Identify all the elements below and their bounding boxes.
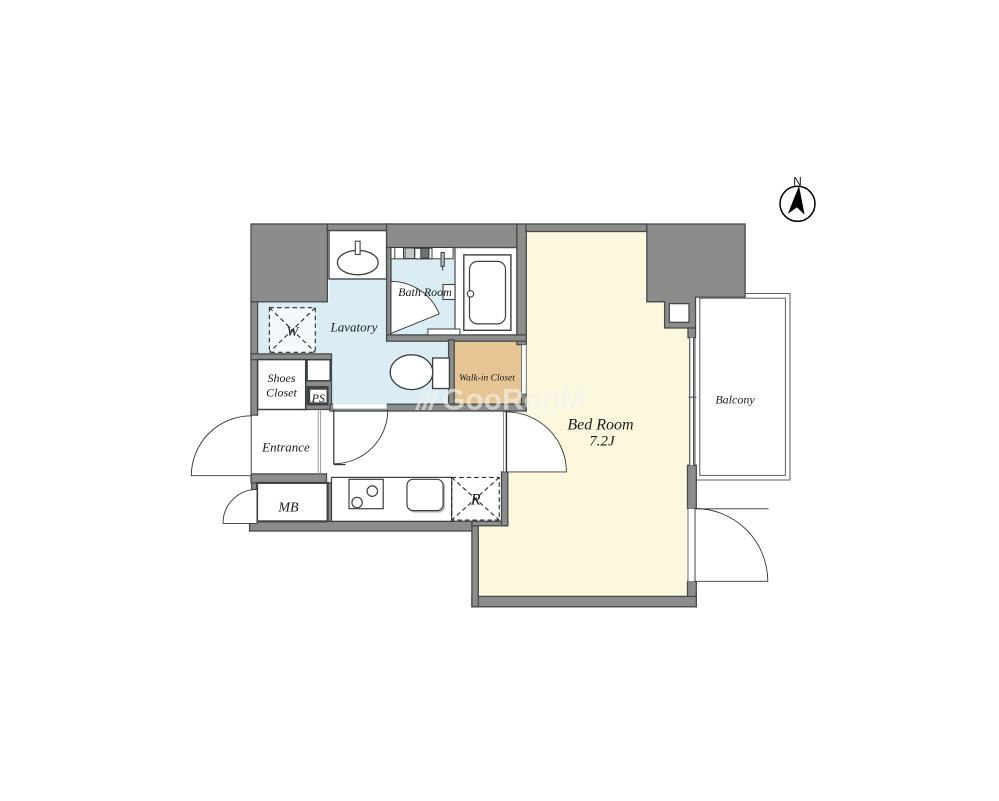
svg-text:MB: MB (277, 501, 299, 516)
svg-text:N: N (793, 175, 802, 189)
svg-text:Closet: Closet (266, 386, 297, 400)
svg-text:Shoes: Shoes (268, 371, 296, 385)
svg-text:W: W (287, 325, 300, 340)
svg-text:PS: PS (311, 391, 325, 405)
svg-text:Entrance: Entrance (261, 440, 310, 455)
svg-text:Bed Room: Bed Room (567, 417, 633, 434)
svg-text:Balcony: Balcony (715, 393, 755, 407)
svg-text:7.2J: 7.2J (589, 434, 616, 450)
svg-text:Bath Room: Bath Room (398, 285, 452, 299)
svg-text:Walk-in Closet: Walk-in Closet (459, 374, 515, 384)
svg-text:Lavatory: Lavatory (330, 320, 378, 335)
svg-text:R: R (470, 492, 481, 509)
svg-text:GooRooM: GooRooM (442, 384, 585, 417)
